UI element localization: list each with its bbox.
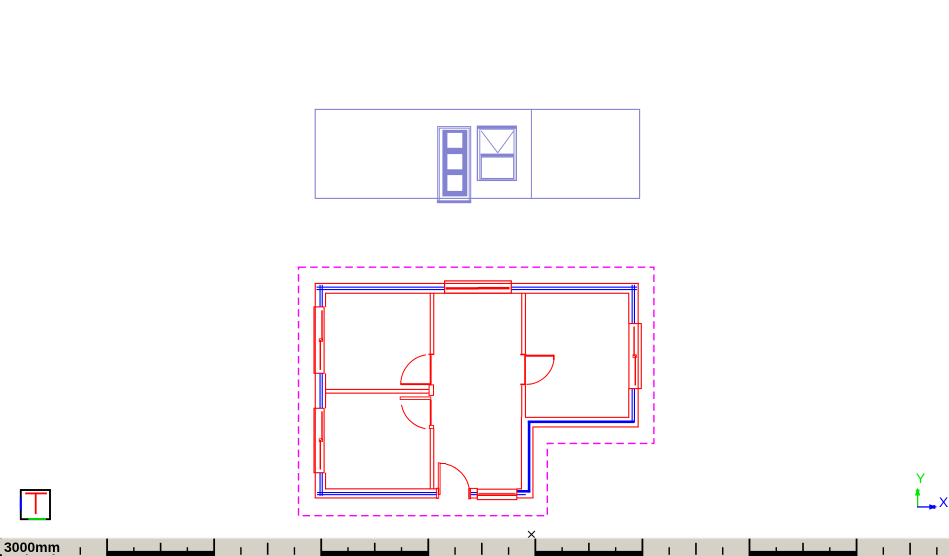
svg-text:3000mm: 3000mm	[4, 539, 60, 555]
svg-text:X: X	[939, 494, 949, 510]
svg-text:Y: Y	[916, 470, 926, 486]
